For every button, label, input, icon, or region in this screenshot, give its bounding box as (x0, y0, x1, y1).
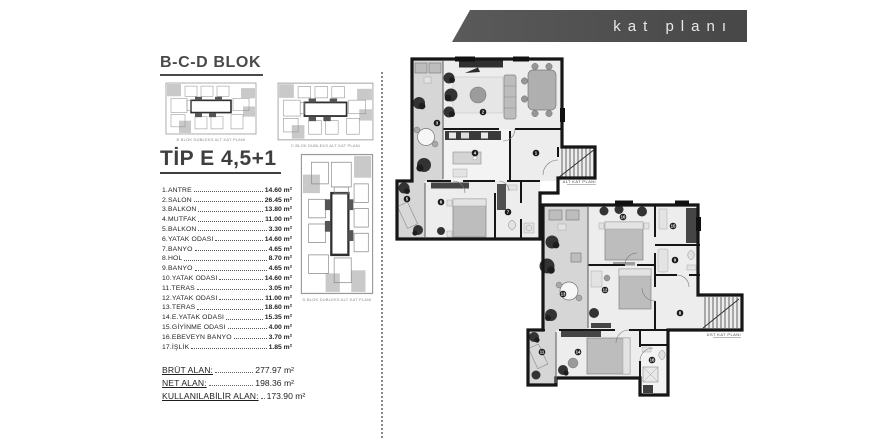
thumbnail-caption: B BLOK DUBLEKS ALT KAT PLANI (165, 137, 257, 142)
room-row: 7.BANYO 4.65 m² (162, 243, 292, 253)
dotted-leader (195, 270, 267, 271)
room-label: 14.E.YATAK ODASI (162, 314, 224, 321)
room-area: 11.00 m² (265, 216, 292, 223)
dotted-leader (191, 348, 266, 349)
dotted-leader (219, 299, 263, 300)
room-row: 8.HOL 8.70 m² (162, 253, 292, 263)
room-area: 3.30 m² (269, 226, 292, 233)
room-label: 7.BANYO (162, 246, 193, 253)
room-label: 15.GİYİNME ODASI (162, 324, 226, 331)
dotted-leader (261, 398, 265, 399)
svg-text:16: 16 (650, 358, 655, 363)
thumbnail-caption: C BLOK DUBLEKS ALT KAT PLANI (277, 143, 374, 148)
room-area: 3.05 m² (269, 285, 292, 292)
room-label: 12.YATAK ODASI (162, 295, 217, 302)
room-label: 8.HOL (162, 255, 182, 262)
room-number-badge: 8 (677, 310, 684, 317)
dotted-leader (215, 240, 262, 241)
floor-plan-sheet: kat planı B-C-D BLOK B BLOK DUBLEKS ALT … (0, 0, 890, 440)
block-title: B-C-D BLOK (160, 54, 263, 76)
svg-text:12: 12 (603, 288, 608, 293)
room-row: 2.SALON 26.45 m² (162, 194, 292, 204)
upper-floor-plan: 8 9 10 11 12 13 14 15 16 ÜST KAT PLANI (525, 197, 748, 397)
dotted-leader (219, 279, 262, 280)
dotted-leader (195, 250, 267, 251)
room-label: 10.YATAK ODASI (162, 275, 217, 282)
header-banner: kat planı (452, 10, 747, 42)
type-title: TİP E 4,5+1 (160, 147, 281, 174)
total-row: BRÜT ALAN: 277.97 m² (162, 362, 294, 375)
room-area: 13.80 m² (265, 206, 292, 213)
room-row: 5.BALKON 3.30 m² (162, 223, 292, 233)
mini-plan-c (277, 82, 374, 141)
room-label: 17.İŞLİK (162, 344, 189, 351)
mini-plan-b (165, 82, 257, 135)
room-number-badge: 13 (560, 291, 567, 298)
room-number-badge: 4 (472, 150, 479, 157)
thumbnail-block-c: C BLOK DUBLEKS ALT KAT PLANI (277, 82, 374, 148)
mini-plan-d (300, 153, 374, 295)
dotted-leader (198, 211, 262, 212)
room-number-badge: 12 (602, 287, 609, 294)
room-area: 11.00 m² (265, 295, 292, 302)
room-number-badge: 7 (505, 209, 512, 216)
dotted-leader (198, 221, 263, 222)
room-row: 11.TERAS 3.05 m² (162, 282, 292, 292)
room-row: 1.ANTRE 14.60 m² (162, 184, 292, 194)
room-label: 16.EBEVEYN BANYO (162, 334, 232, 341)
total-row: NET ALAN: 198.36 m² (162, 375, 294, 388)
area-totals: BRÜT ALAN: 277.97 m² NET ALAN: 198.36 m²… (162, 362, 294, 401)
svg-text:10: 10 (621, 215, 626, 220)
room-label: 13.TERAS (162, 304, 195, 311)
room-row: 4.MUTFAK 11.00 m² (162, 213, 292, 223)
room-area: 4.65 m² (269, 265, 292, 272)
room-row: 6.YATAK ODASI 14.60 m² (162, 233, 292, 243)
dotted-leader (209, 385, 254, 386)
total-row: KULLANILABİLİR ALAN: 173.90 m² (162, 388, 294, 401)
room-area: 14.60 m² (265, 236, 292, 243)
room-number-badge: 10 (620, 214, 627, 221)
dotted-leader (234, 338, 267, 339)
room-row: 10.YATAK ODASI 14.60 m² (162, 272, 292, 282)
room-area: 14.60 m² (265, 187, 292, 194)
dotted-leader (198, 230, 266, 231)
lower-plan-caption: ALT KAT PLANI (563, 179, 596, 184)
room-label: 9.BANYO (162, 265, 193, 272)
page-title: kat planı (613, 18, 747, 35)
svg-text:11: 11 (540, 350, 545, 355)
total-value: 277.97 m² (255, 365, 294, 375)
room-label: 2.SALON (162, 197, 192, 204)
room-area: 26.45 m² (265, 197, 292, 204)
dotted-leader (184, 260, 266, 261)
total-label: BRÜT ALAN: (162, 365, 213, 375)
total-value: 198.36 m² (255, 378, 294, 388)
total-label: KULLANILABİLİR ALAN: (162, 391, 259, 401)
room-area: 4.00 m² (269, 324, 292, 331)
room-row: 12.YATAK ODASI 11.00 m² (162, 292, 292, 302)
room-label: 6.YATAK ODASI (162, 236, 213, 243)
room-row: 17.İŞLİK 1.85 m² (162, 341, 292, 351)
room-label: 11.TERAS (162, 285, 195, 292)
room-area: 3.70 m² (269, 334, 292, 341)
room-row: 9.BANYO 4.65 m² (162, 262, 292, 272)
room-area: 8.70 m² (269, 255, 292, 262)
room-number-badge: 14 (575, 349, 582, 356)
total-value: 173.90 m² (267, 391, 306, 401)
svg-text:13: 13 (561, 292, 566, 297)
thumbnail-block-d: D BLOK DUBLEKS ALT KAT PLANI (300, 153, 374, 302)
room-label: 3.BALKON (162, 206, 196, 213)
room-area: 15.35 m² (265, 314, 292, 321)
room-row: 3.BALKON 13.80 m² (162, 204, 292, 214)
room-label: 4.MUTFAK (162, 216, 196, 223)
room-number-badge: 2 (480, 109, 487, 116)
room-label: 1.ANTRE (162, 187, 192, 194)
dotted-leader (228, 328, 267, 329)
dotted-leader (197, 289, 267, 290)
upper-plan-caption: ÜST KAT PLANI (707, 332, 741, 337)
room-area: 14.60 m² (265, 275, 292, 282)
thumbnail-caption: D BLOK DUBLEKS ALT KAT PLANI (300, 297, 374, 302)
room-row: 16.EBEVEYN BANYO 3.70 m² (162, 331, 292, 341)
room-number-badge: 15 (670, 223, 677, 230)
svg-text:14: 14 (576, 350, 581, 355)
total-label: NET ALAN: (162, 378, 207, 388)
room-area: 4.65 m² (269, 246, 292, 253)
room-number-badge: 1 (533, 150, 540, 157)
room-row: 15.GİYİNME ODASI 4.00 m² (162, 321, 292, 331)
svg-text:15: 15 (671, 224, 676, 229)
room-label: 5.BALKON (162, 226, 196, 233)
room-row: 13.TERAS 18.60 m² (162, 302, 292, 312)
dotted-separator (381, 72, 383, 438)
dotted-leader (194, 191, 263, 192)
room-number-badge: 5 (404, 196, 411, 203)
dotted-leader (215, 372, 253, 373)
room-area: 18.60 m² (265, 304, 292, 311)
room-number-badge: 6 (438, 199, 445, 206)
room-number-badge: 11 (539, 349, 546, 356)
dotted-leader (197, 309, 262, 310)
thumbnail-block-b: B BLOK DUBLEKS ALT KAT PLANI (165, 82, 257, 142)
room-list: 1.ANTRE 14.60 m² 2.SALON 26.45 m² 3.BALK… (162, 184, 292, 351)
dotted-leader (226, 319, 263, 320)
dotted-leader (194, 201, 263, 202)
room-number-badge: 3 (434, 120, 441, 127)
room-number-badge: 16 (649, 357, 656, 364)
room-area: 1.85 m² (269, 344, 292, 351)
room-row: 14.E.YATAK ODASI 15.35 m² (162, 311, 292, 321)
room-number-badge: 9 (672, 257, 679, 264)
